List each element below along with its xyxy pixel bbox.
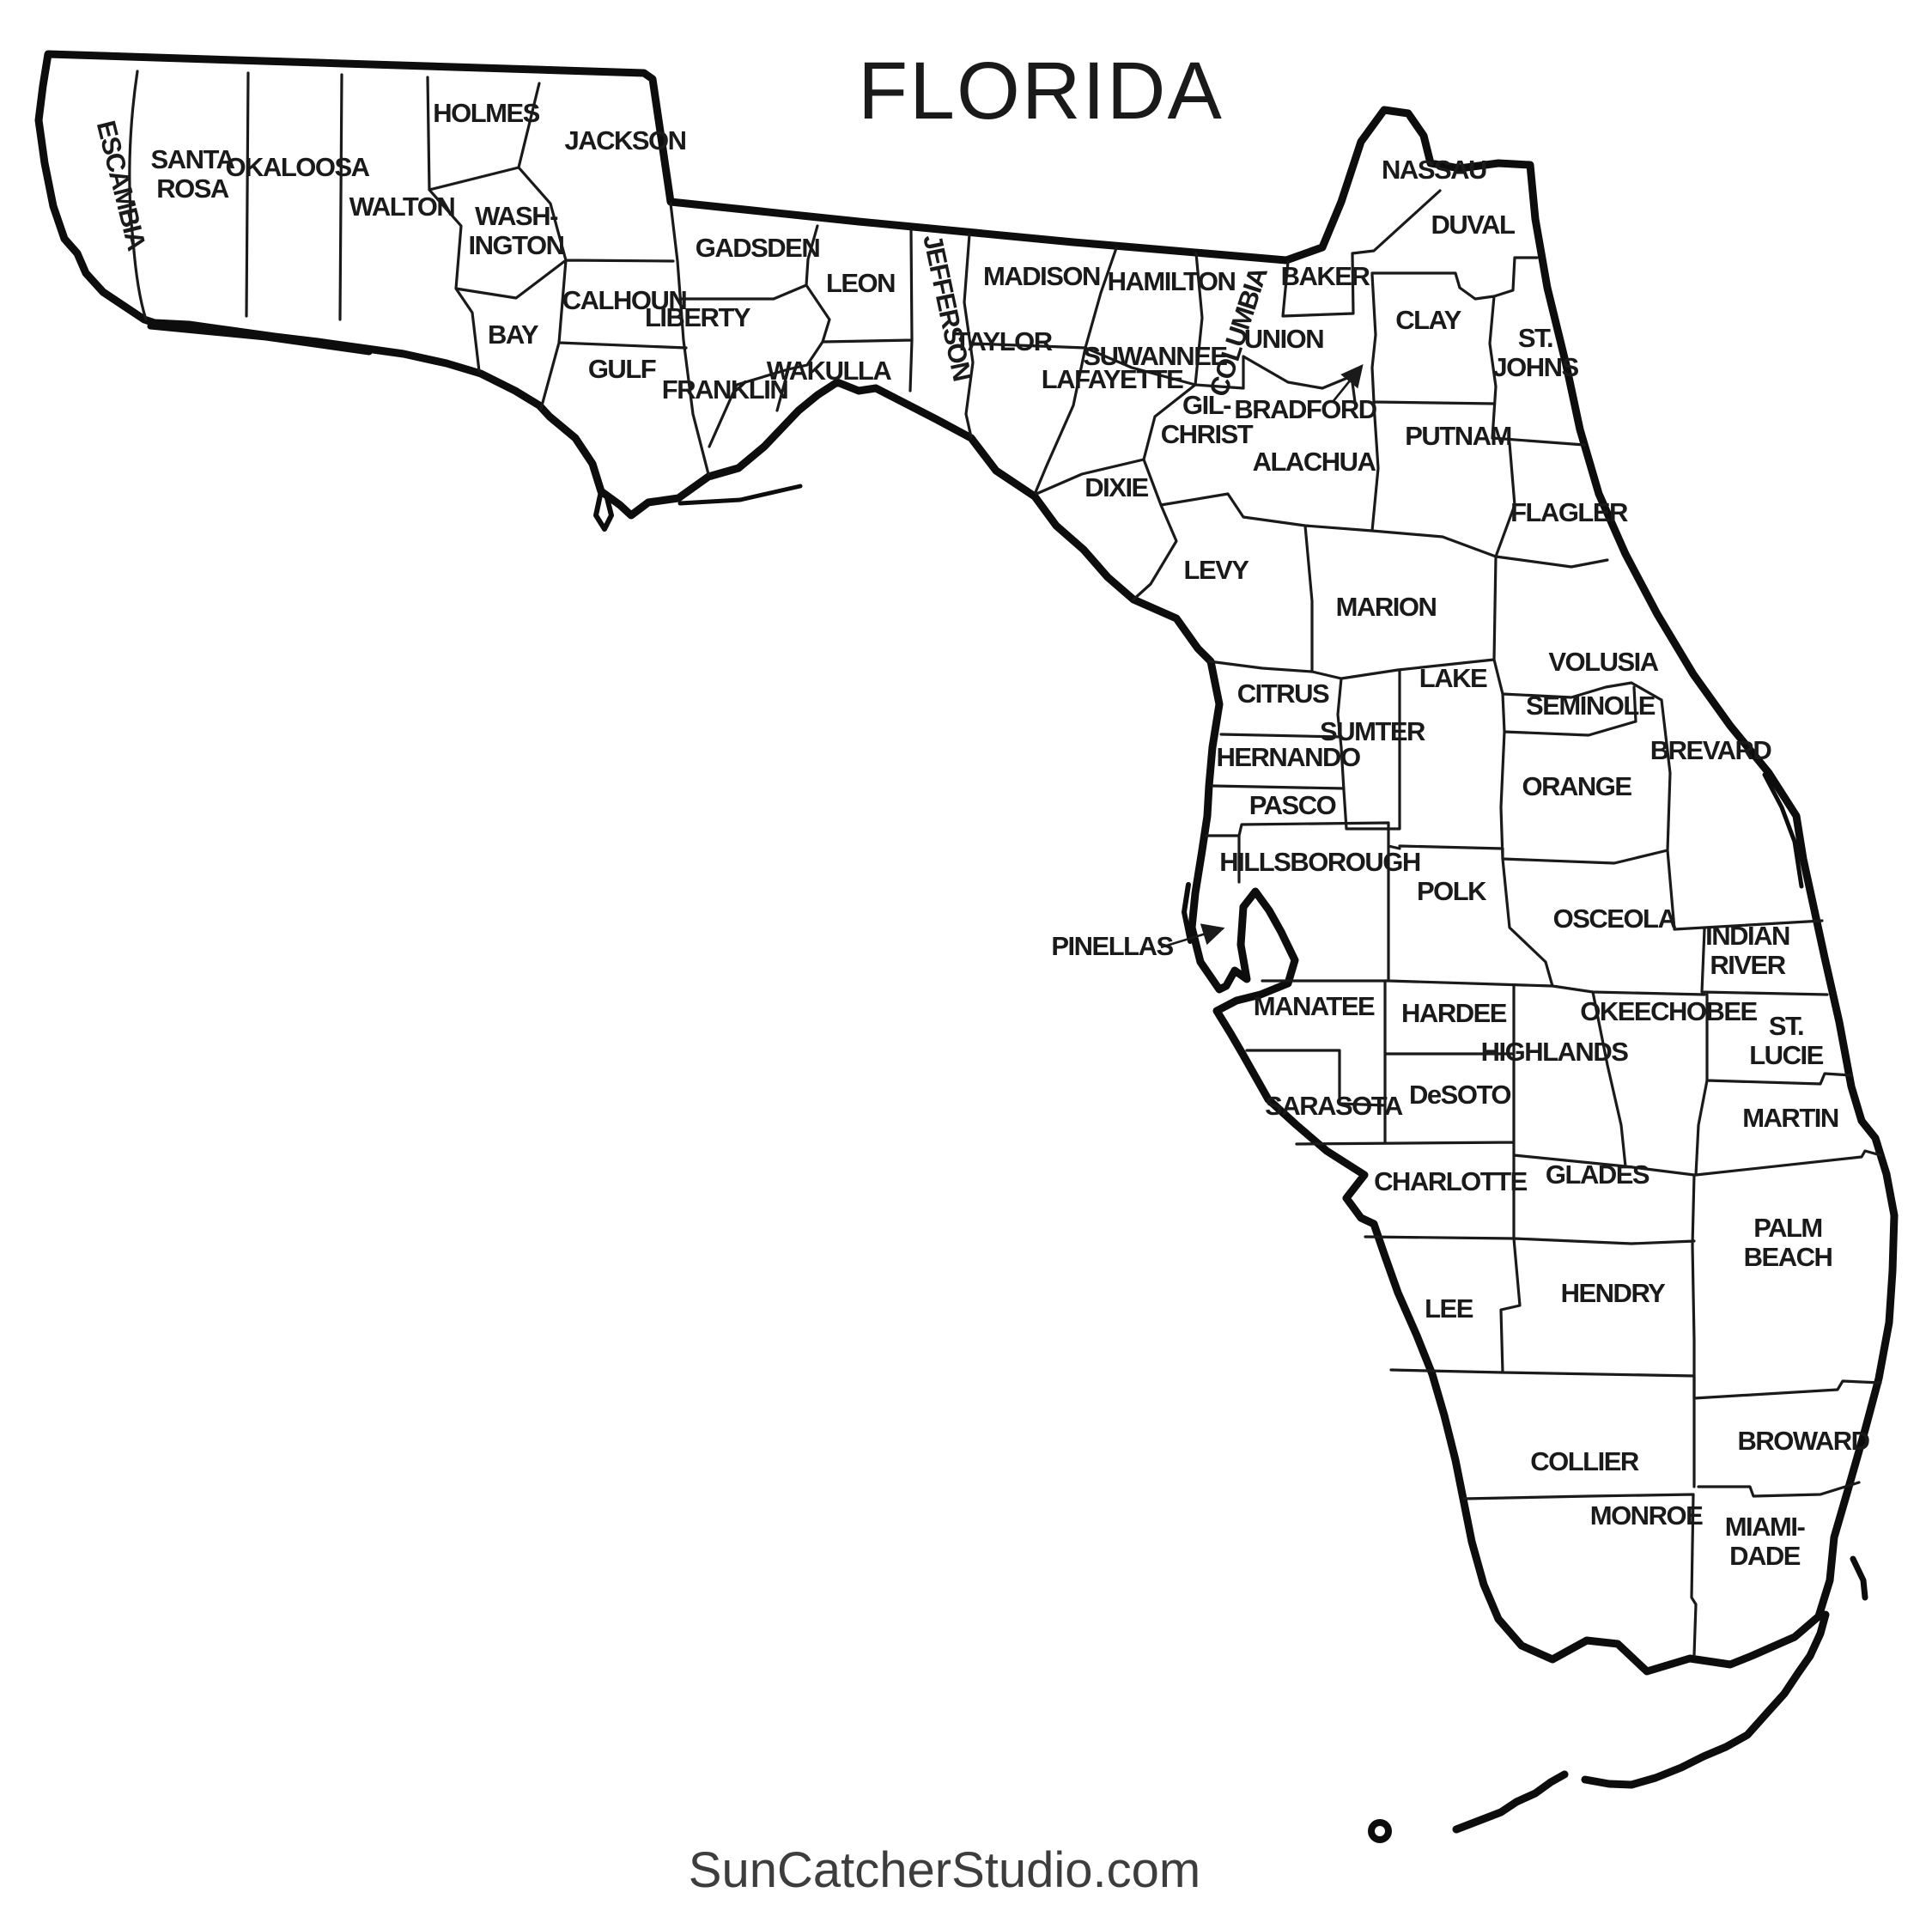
county-label-pinellas: PINELLAS	[1051, 931, 1173, 961]
county-label-collier: COLLIER	[1530, 1446, 1639, 1476]
county-label-wakulla: WAKULLA	[767, 356, 892, 386]
county-label-flagler: FLAGLER	[1510, 497, 1628, 527]
county-label-madison: MADISON	[983, 261, 1100, 291]
county-label-bay: BAY	[488, 319, 539, 350]
county-label-pasco: PASCO	[1249, 790, 1336, 820]
county-label-hernando: HERNANDO	[1216, 742, 1360, 772]
county-label-jackson: JACKSON	[564, 125, 685, 155]
county-label-orange: ORANGE	[1522, 771, 1631, 801]
county-label-monroe: MONROE	[1590, 1500, 1703, 1531]
county-label-marion: MARION	[1336, 592, 1437, 622]
county-label-leon: LEON	[826, 268, 895, 298]
county-label-okaloosa: OKALOOSA	[225, 152, 369, 182]
county-label-martin: MARTIN	[1742, 1103, 1838, 1133]
county-label-duval: DUVAL	[1431, 210, 1516, 240]
county-label-santa-rosa: SANTAROSA	[151, 144, 235, 204]
county-label-polk: POLK	[1417, 876, 1487, 906]
county-label-gadsden: GADSDEN	[696, 233, 820, 263]
county-label-lafayette: LAFAYETTE	[1042, 364, 1183, 394]
county-label-miami-dade: MIAMI-DADE	[1725, 1512, 1806, 1571]
county-label-bradford: BRADFORD	[1234, 394, 1376, 424]
county-label-okeechobee: OKEECHOBEE	[1580, 996, 1757, 1026]
keys-and-islands	[150, 326, 1865, 1840]
county-label-holmes: HOLMES	[433, 98, 539, 128]
county-label-glades: GLADES	[1546, 1159, 1649, 1190]
county-label-hillsborough: HILLSBOROUGH	[1219, 847, 1420, 877]
county-label-walton: WALTON	[349, 192, 455, 222]
county-label-indian-river: INDIANRIVER	[1705, 921, 1789, 980]
county-label-clay: CLAY	[1395, 305, 1461, 335]
county-label-washington: WASH-INGTON	[469, 201, 564, 260]
map-title: FLORIDA	[858, 46, 1224, 137]
county-label-taylor: TAYLOR	[954, 326, 1052, 356]
lower-keys	[1456, 1774, 1564, 1829]
county-label-hamilton: HAMILTON	[1108, 266, 1236, 296]
key-biscayne	[1853, 1559, 1865, 1597]
county-label-st-lucie: ST.LUCIE	[1749, 1011, 1823, 1070]
county-label-alachua: ALACHUA	[1253, 447, 1376, 477]
county-label-st-johns: ST.JOHNS	[1492, 323, 1578, 382]
key-west-island	[1371, 1823, 1388, 1840]
county-label-nassau: NASSAU	[1382, 155, 1486, 185]
county-borders	[130, 71, 1880, 1655]
county-label-liberty: LIBERTY	[645, 302, 751, 332]
county-label-osceola: OSCEOLA	[1553, 904, 1677, 934]
county-label-dixie: DIXIE	[1084, 472, 1148, 502]
county-label-escambia: ESCAMBIA	[91, 118, 152, 253]
county-label-levy: LEVY	[1184, 555, 1250, 585]
county-labels: ESCAMBIASANTAROSAOKALOOSAWALTONHOLMESWAS…	[91, 98, 1870, 1571]
county-label-hendry: HENDRY	[1561, 1278, 1667, 1308]
county-label-putnam: PUTNAM	[1405, 421, 1511, 451]
pinellas-barrier	[1184, 885, 1190, 941]
county-label-baker: BAKER	[1281, 261, 1370, 291]
footer-credit: SunCatcherStudio.com	[689, 1842, 1200, 1898]
county-label-lee: LEE	[1425, 1293, 1473, 1324]
florida-county-map: FLORIDA ESCAMBIASANTAROSAOKALOOSAWALTONH…	[0, 0, 1932, 1917]
county-label-citrus: CITRUS	[1237, 679, 1329, 709]
county-label-charlotte: CHARLOTTE	[1374, 1166, 1527, 1196]
county-label-palm-beach: PALMBEACH	[1744, 1213, 1832, 1272]
page: FLORIDA ESCAMBIASANTAROSAOKALOOSAWALTONH…	[0, 0, 1932, 1917]
county-label-hardee: HARDEE	[1401, 998, 1507, 1028]
county-label-lake: LAKE	[1419, 663, 1487, 693]
santa-rosa-island	[150, 326, 369, 352]
county-label-highlands: HIGHLANDS	[1481, 1037, 1629, 1067]
county-label-desoto: DeSOTO	[1409, 1080, 1510, 1110]
county-label-manatee: MANATEE	[1254, 991, 1375, 1021]
county-label-brevard: BREVARD	[1650, 735, 1772, 765]
county-label-union: UNION	[1244, 324, 1324, 354]
county-label-broward: BROWARD	[1737, 1426, 1869, 1456]
county-label-seminole: SEMINOLE	[1526, 691, 1656, 721]
county-label-volusia: VOLUSIA	[1548, 647, 1658, 677]
county-label-gulf: GULF	[588, 354, 656, 384]
county-label-sarasota: SARASOTA	[1265, 1091, 1403, 1121]
